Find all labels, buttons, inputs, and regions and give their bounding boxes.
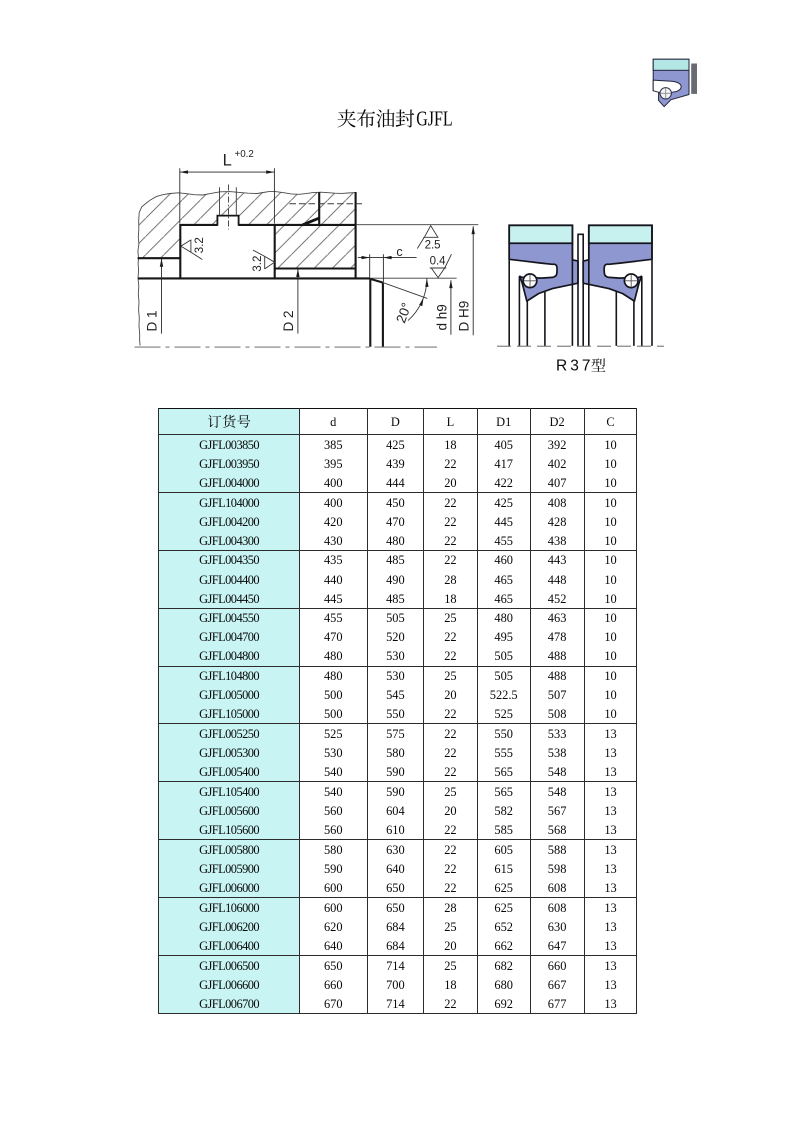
svg-text:D H9: D H9 [457, 301, 472, 332]
svg-text:d h9: d h9 [434, 304, 449, 330]
svg-text:L: L [223, 152, 232, 170]
svg-text:R37: R37 [556, 357, 593, 374]
svg-text:c: c [396, 245, 402, 259]
svg-text:+0.2: +0.2 [235, 149, 254, 160]
svg-text:D 1: D 1 [145, 310, 160, 331]
svg-text:D 2: D 2 [281, 310, 296, 331]
svg-text:20°: 20° [393, 301, 414, 325]
svg-text:GJFL: GJFL [416, 107, 453, 131]
svg-text:3.2: 3.2 [252, 256, 264, 272]
svg-text:3.2: 3.2 [194, 237, 206, 253]
svg-text:2.5: 2.5 [425, 240, 441, 252]
svg-text:0.4: 0.4 [430, 255, 447, 267]
